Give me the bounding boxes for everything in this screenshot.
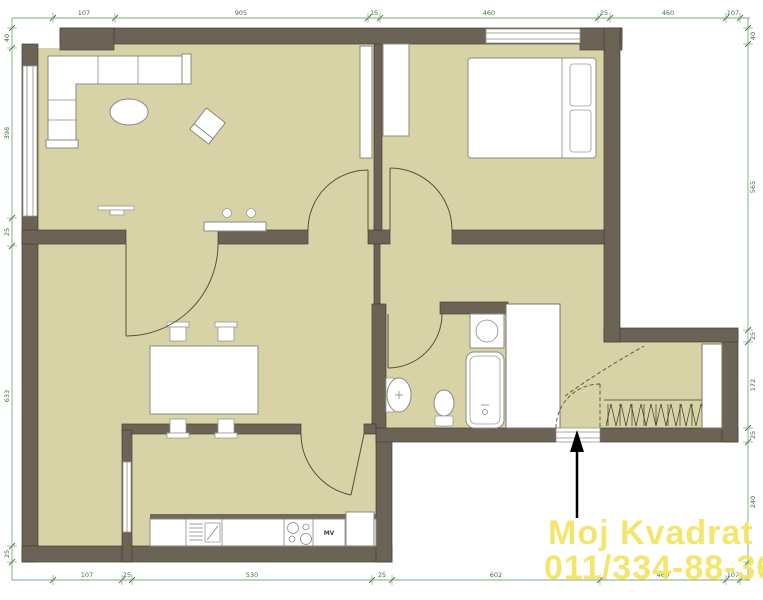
closet-shaft	[506, 304, 560, 428]
wardrobe-bedroom-icon	[383, 44, 409, 136]
pillow-icon	[570, 110, 591, 152]
svg-text:25: 25	[749, 431, 757, 439]
coffee-table-icon	[110, 99, 148, 125]
glass-partition-kitchen-icon	[123, 462, 131, 532]
kitchen-counter-icon	[150, 519, 376, 546]
countertop-edge	[150, 514, 376, 519]
svg-text:25: 25	[370, 9, 378, 17]
svg-text:25: 25	[600, 9, 608, 17]
wall-bath-left	[372, 304, 386, 428]
sideboard-icon	[204, 222, 266, 231]
wall-right-outer	[722, 330, 738, 442]
wall-lower-right-a	[376, 428, 556, 442]
bathtub-icon	[466, 352, 504, 428]
svg-text:107: 107	[81, 571, 93, 579]
watermark: Moj Kvadrat 011/334-88-36	[544, 514, 763, 587]
watermark-line2: 011/334-88-36	[544, 549, 763, 587]
svg-text:633: 633	[3, 390, 11, 402]
svg-text:40: 40	[3, 34, 11, 42]
wall-mid-a	[22, 230, 126, 244]
svg-text:25: 25	[3, 228, 11, 236]
wall-top-pillar-left	[60, 28, 114, 50]
kitchen-furniture: MV	[150, 512, 376, 546]
svg-text:602: 602	[490, 571, 502, 579]
dining-table-icon	[150, 346, 258, 414]
wall-bedroom-right	[604, 28, 620, 342]
washing-machine-icon	[470, 314, 504, 348]
svg-text:40: 40	[749, 32, 757, 40]
pillow-icon	[570, 64, 591, 106]
svg-text:107: 107	[727, 9, 739, 17]
watermark-line1: Moj Kvadrat	[548, 514, 754, 552]
washbasin-icon	[386, 378, 411, 412]
decor-stool-icon	[223, 209, 232, 218]
wall-center-divider	[374, 44, 382, 230]
entrance-arrow-icon	[570, 430, 584, 518]
wall-bottom	[22, 546, 392, 562]
window-living-left-icon	[23, 66, 37, 216]
wall-mid-b	[218, 230, 308, 244]
svg-text:398: 398	[3, 127, 11, 139]
stool-icon	[215, 419, 237, 438]
svg-text:107: 107	[78, 9, 90, 17]
wall-dining-hall	[374, 244, 380, 304]
svg-text:565: 565	[749, 181, 757, 193]
window-bedroom-top-icon	[486, 29, 580, 43]
svg-text:25: 25	[749, 332, 757, 340]
wall-step	[604, 328, 738, 342]
wall-mid-c	[368, 230, 390, 244]
entry-door-leaf	[702, 344, 722, 428]
appliance-label: MV	[324, 530, 335, 537]
svg-text:172: 172	[749, 379, 757, 391]
double-bed-icon	[468, 58, 596, 158]
svg-text:460: 460	[483, 9, 495, 17]
stool-icon	[215, 322, 237, 341]
fridge-icon	[346, 512, 374, 546]
wall-bath-top	[440, 302, 508, 314]
svg-text:905: 905	[235, 9, 247, 17]
svg-text:25: 25	[123, 571, 131, 579]
svg-text:25: 25	[378, 571, 386, 579]
wall-kitchen-right	[376, 430, 392, 562]
stool-icon	[167, 419, 189, 438]
wall-kitchen-top-a	[122, 424, 301, 434]
svg-text:460: 460	[662, 9, 674, 17]
toilet-icon	[434, 390, 454, 426]
wall-kitchen-top-b	[364, 424, 376, 434]
wall-lower-right-b	[600, 428, 738, 442]
wall-mid-d	[452, 230, 604, 244]
svg-text:240: 240	[749, 496, 757, 508]
floor-plan-image: 1079052546025460107107255302560246010740…	[0, 0, 763, 600]
svg-text:25: 25	[3, 550, 11, 558]
svg-text:530: 530	[246, 571, 258, 579]
wardrobe-living-icon	[360, 46, 372, 158]
decor-stool-icon	[247, 209, 256, 218]
